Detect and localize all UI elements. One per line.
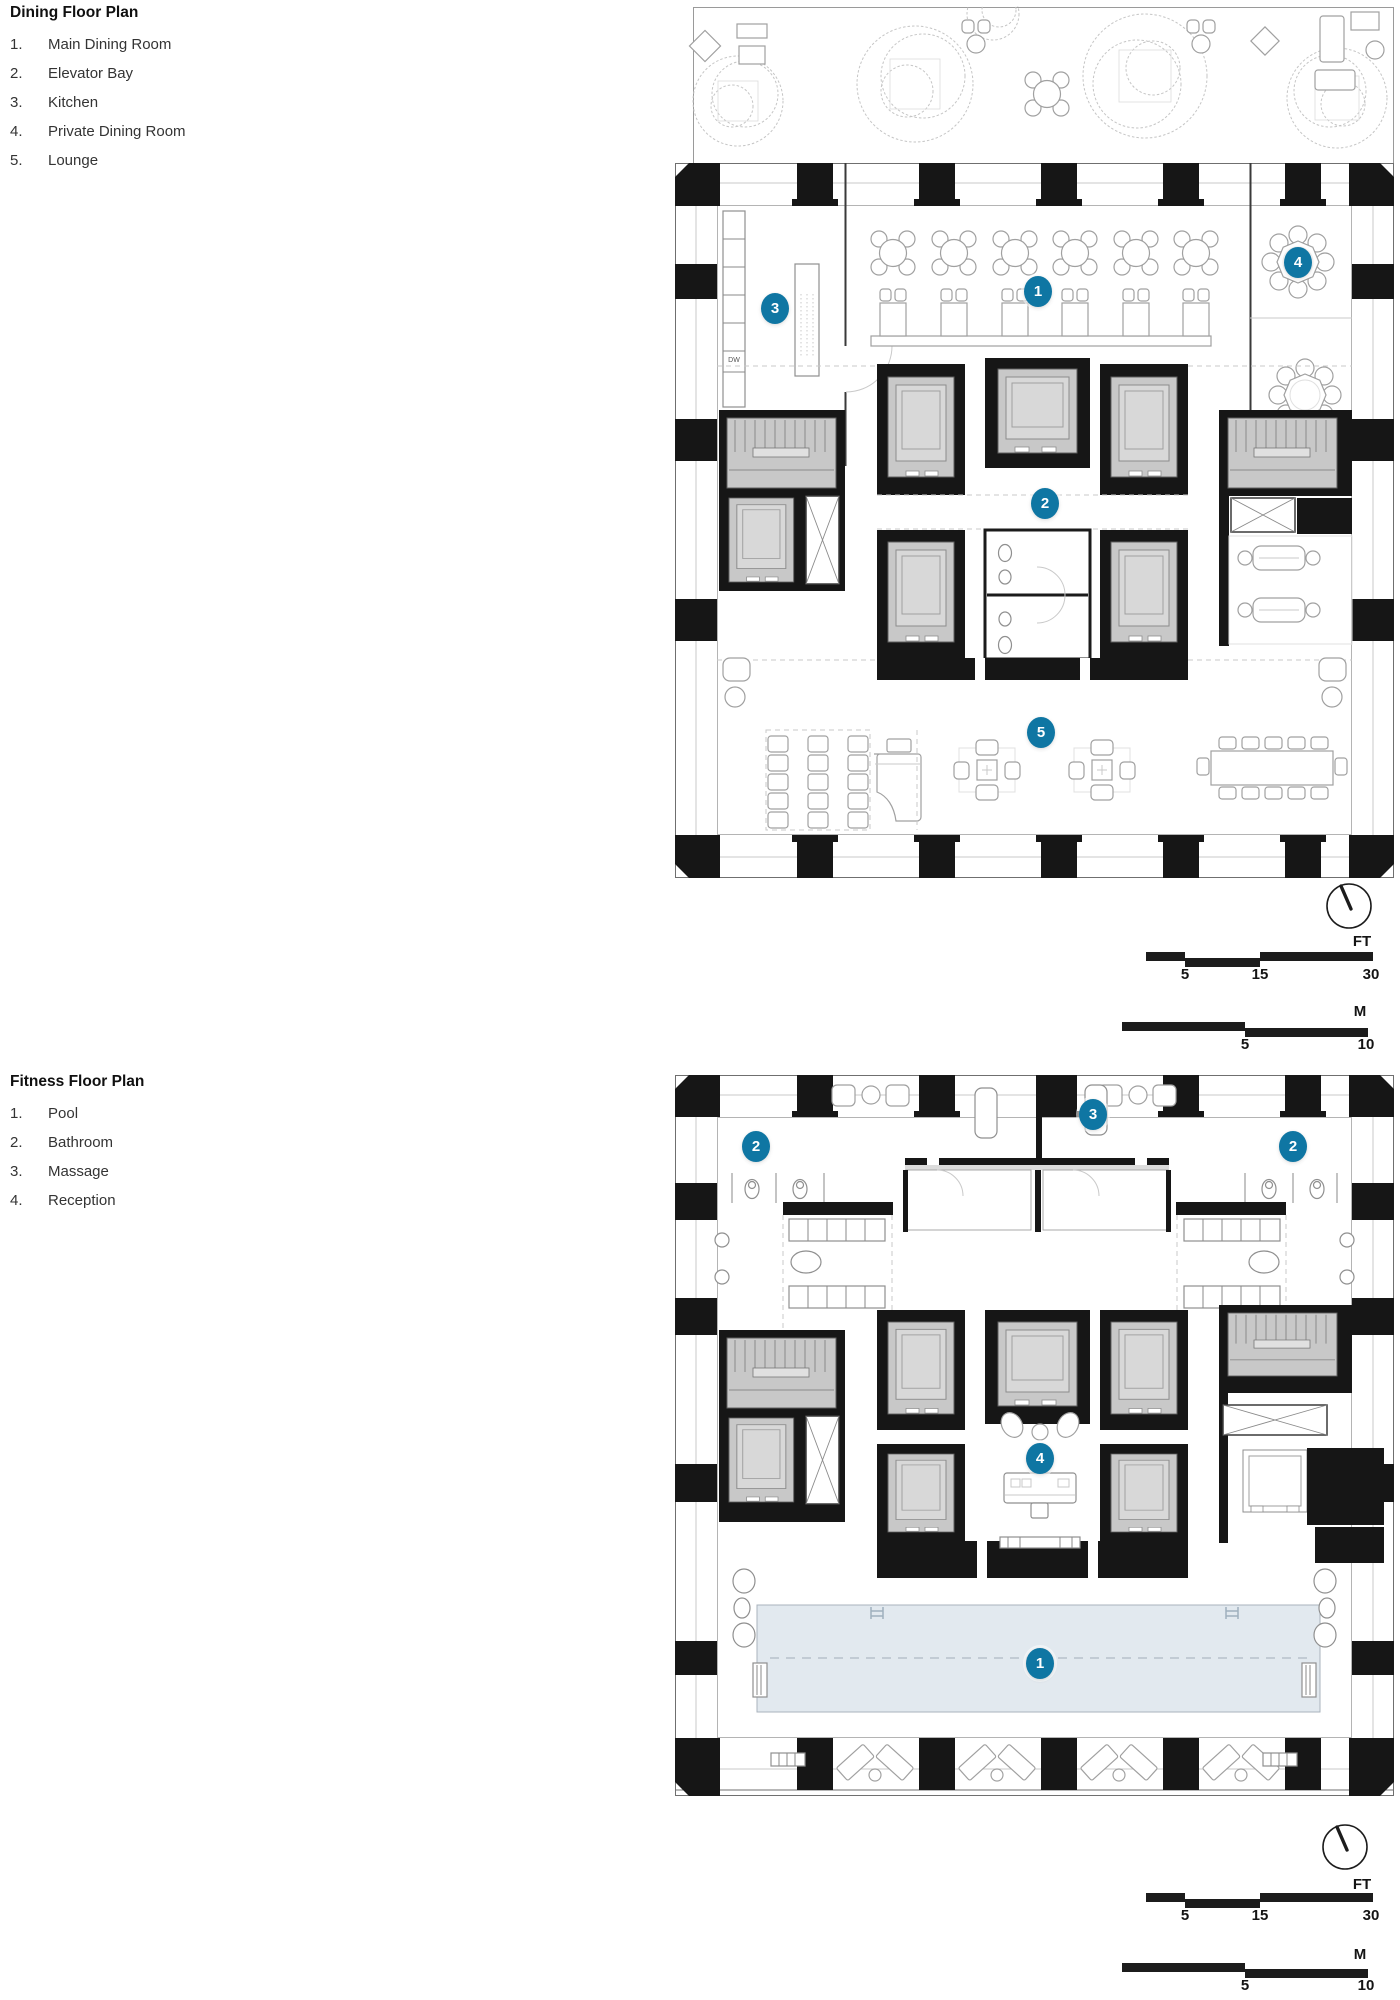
scale-segment <box>1245 1969 1368 1978</box>
plan-marker-bathroom-right: 2 <box>1279 1131 1307 1162</box>
ft-tick: 15 <box>1252 966 1269 983</box>
ft-tick: 5 <box>1181 1907 1189 1924</box>
m-tick: 10 <box>1358 1977 1375 1994</box>
terrace <box>689 6 1393 164</box>
plan-marker-massage: 3 <box>1079 1099 1107 1130</box>
m-unit-label: M <box>1354 1946 1367 1963</box>
ft-tick: 30 <box>1363 1907 1380 1924</box>
fitness-legend-title: Fitness Floor Plan <box>10 1073 144 1091</box>
north-arrow-icon <box>1324 881 1374 931</box>
scale-segment <box>1185 958 1260 967</box>
fitness-legend: Fitness Floor Plan 1.Pool 2.Bathroom 3.M… <box>10 1073 144 1215</box>
plan-marker-private-dining: 4 <box>1284 247 1312 278</box>
stair-core <box>727 418 836 488</box>
stair-core <box>727 1338 836 1408</box>
scale-segment <box>1260 952 1373 961</box>
legend-item: 2.Bathroom <box>10 1128 144 1157</box>
ft-tick: 5 <box>1181 966 1189 983</box>
stair-core <box>1228 418 1337 488</box>
legend-item: 3.Massage <box>10 1157 144 1186</box>
plan-marker-lounge: 5 <box>1027 717 1055 748</box>
ft-unit-label: FT <box>1353 933 1371 950</box>
legend-item: 1.Main Dining Room <box>10 30 186 59</box>
scale-segment <box>1260 1893 1373 1902</box>
plan-marker-main-dining: 1 <box>1024 276 1052 307</box>
scale-segment <box>1122 1963 1245 1972</box>
legend-item: 4.Private Dining Room <box>10 117 186 146</box>
scale-segment <box>1185 1899 1260 1908</box>
m-tick: 5 <box>1241 1977 1249 1994</box>
m-tick: 10 <box>1358 1036 1375 1053</box>
scale-segment <box>1146 952 1185 961</box>
plan-marker-elevator-bay: 2 <box>1031 488 1059 519</box>
plan-marker-bathroom-left: 2 <box>742 1131 770 1162</box>
scale-segment <box>1122 1022 1245 1031</box>
north-arrow-icon <box>1320 1822 1370 1872</box>
legend-item: 4.Reception <box>10 1186 144 1215</box>
ft-tick: 15 <box>1252 1907 1269 1924</box>
dining-legend: Dining Floor Plan 1.Main Dining Room 2.E… <box>10 4 186 175</box>
core-bathroom <box>985 530 1090 659</box>
dining-floor-plan: 1 2 3 4 5 DW <box>675 6 1394 878</box>
scale-segment <box>1146 1893 1185 1902</box>
legend-item: 2.Elevator Bay <box>10 59 186 88</box>
m-tick: 5 <box>1241 1036 1249 1053</box>
scale-segment <box>1245 1028 1368 1037</box>
fitness-floor-plan: 2 3 2 4 1 <box>675 1075 1394 1796</box>
plan-marker-kitchen: 3 <box>761 293 789 324</box>
dining-legend-title: Dining Floor Plan <box>10 4 186 22</box>
legend-item: 5.Lounge <box>10 146 186 175</box>
long-dining-table <box>1197 737 1347 799</box>
plan-marker-pool: 1 <box>1026 1648 1054 1679</box>
legend-item: 1.Pool <box>10 1099 144 1128</box>
legend-item: 3.Kitchen <box>10 88 186 117</box>
ft-unit-label: FT <box>1353 1876 1371 1893</box>
stair-core <box>1228 1313 1337 1376</box>
m-unit-label: M <box>1354 1003 1367 1020</box>
plan-marker-reception: 4 <box>1026 1443 1054 1474</box>
ft-tick: 30 <box>1363 966 1380 983</box>
dishwasher-label: DW <box>723 357 745 364</box>
